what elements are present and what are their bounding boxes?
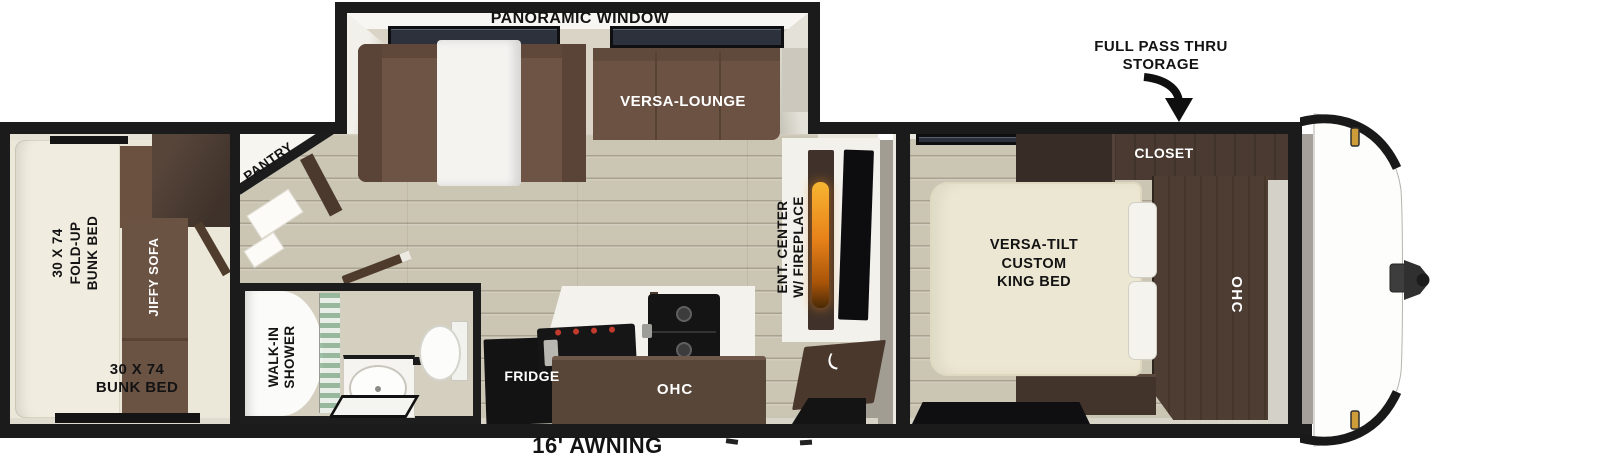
burner-knob bbox=[555, 329, 561, 335]
kitchen-ohc-label: OHC bbox=[640, 381, 710, 399]
awning-arm-mark bbox=[726, 438, 739, 445]
fridge-label: FRIDGE bbox=[490, 368, 574, 385]
burner-knob bbox=[609, 327, 615, 333]
sofa-bed-mattress bbox=[437, 40, 521, 186]
bedroom-wall-shade bbox=[1268, 180, 1288, 424]
sink-divider bbox=[652, 331, 716, 333]
king-bed-label: VERSA-TILT CUSTOM KING BED bbox=[952, 236, 1116, 292]
bath-mat bbox=[328, 395, 419, 418]
closet-label: CLOSET bbox=[1118, 145, 1210, 161]
exterior-wall-top-right bbox=[818, 122, 1302, 134]
bunk-bed-label: 30 X 74 BUNK BED bbox=[72, 361, 202, 397]
front-cap-body bbox=[1314, 114, 1403, 446]
bedroom-divider-wall bbox=[896, 134, 910, 424]
panoramic-window-right bbox=[610, 26, 784, 48]
door-handle-mark bbox=[824, 353, 843, 370]
panoramic-window-label: PANORAMIC WINDOW bbox=[400, 9, 760, 27]
slideout-corner-shade bbox=[782, 48, 808, 112]
faucet bbox=[642, 324, 652, 338]
hitch-ball-socket bbox=[1417, 274, 1430, 287]
fireplace-flame bbox=[812, 182, 829, 308]
rv-floorplan: PANORAMIC WINDOW VERSA-LOUNGE FULL PASS … bbox=[0, 0, 1600, 460]
ent-center-label: ENT. CENTER W/ FIREPLACE bbox=[775, 171, 811, 323]
versa-lounge-back bbox=[593, 48, 780, 61]
awning-arm-mark bbox=[800, 440, 812, 446]
pillow bbox=[1128, 202, 1157, 278]
shower-glass-door bbox=[319, 293, 340, 413]
pass-thru-arrow-icon bbox=[1138, 72, 1202, 126]
overhead-bunk bbox=[152, 133, 233, 227]
toilet-bowl bbox=[419, 325, 461, 381]
trailer-front-cap bbox=[1300, 106, 1445, 454]
clearance-light-icon bbox=[1351, 411, 1359, 429]
burner-knob bbox=[591, 327, 597, 333]
bunk-room-bottom-window bbox=[55, 413, 200, 423]
bedroom-bottom-window bbox=[912, 402, 1090, 424]
versa-lounge-label: VERSA-LOUNGE bbox=[598, 93, 768, 111]
bunk-room-top-window bbox=[50, 136, 128, 144]
slideout-wall-left bbox=[335, 2, 347, 134]
awning-label: 16' AWNING bbox=[495, 433, 700, 459]
walk-in-shower-label: WALK-IN SHOWER bbox=[266, 314, 300, 400]
bunk-under-shade bbox=[120, 146, 154, 228]
pass-thru-storage-label: FULL PASS THRU STORAGE bbox=[1076, 38, 1246, 74]
pillow bbox=[1128, 281, 1157, 360]
sofa-bed-arm-right bbox=[562, 44, 586, 182]
sofa-bed-arm-left bbox=[358, 44, 382, 182]
clearance-light-icon bbox=[1351, 128, 1359, 146]
jiffy-sofa-label: JIFFY SOFA bbox=[146, 231, 162, 323]
sink-drain bbox=[375, 386, 381, 392]
burner-knob bbox=[573, 328, 579, 334]
hitch-mount bbox=[1390, 264, 1406, 292]
bedroom-ohc-cabinet bbox=[1152, 176, 1270, 420]
slideout-wall-right bbox=[808, 2, 820, 134]
jiffy-sofa-seam bbox=[122, 338, 188, 341]
fold-up-bunk-label: 30 X 74 FOLD-UP BUNK BED bbox=[49, 198, 103, 308]
sink-drain bbox=[676, 306, 692, 322]
bedroom-ohc-label: OHC bbox=[1229, 265, 1245, 325]
tv-panel bbox=[838, 150, 874, 321]
exterior-wall-left bbox=[0, 122, 10, 438]
